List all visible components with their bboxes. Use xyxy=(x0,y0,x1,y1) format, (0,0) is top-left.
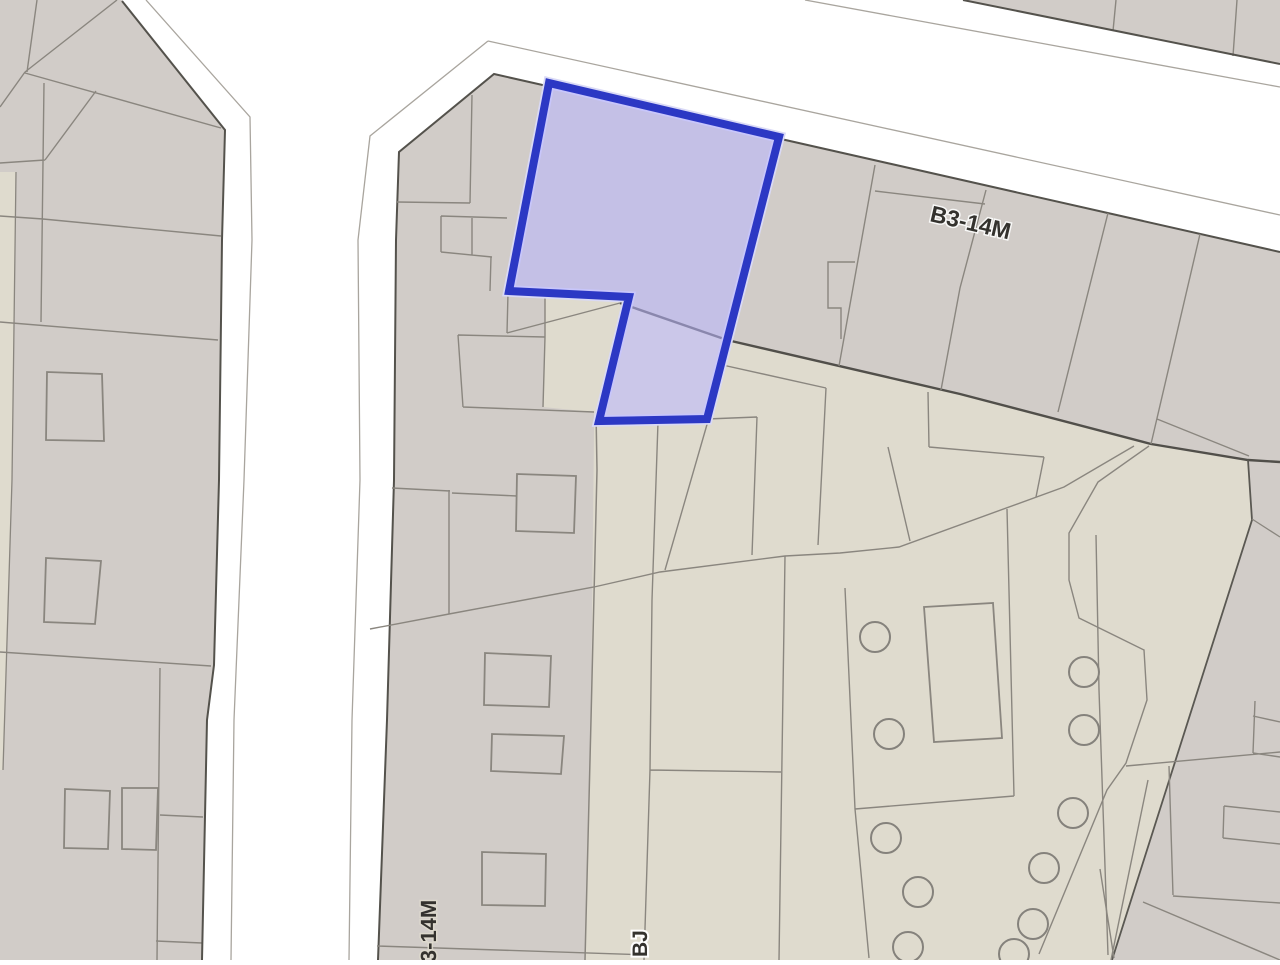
svg-text:B3-14M: B3-14M xyxy=(416,900,441,960)
svg-text:BJ: BJ xyxy=(629,930,652,957)
